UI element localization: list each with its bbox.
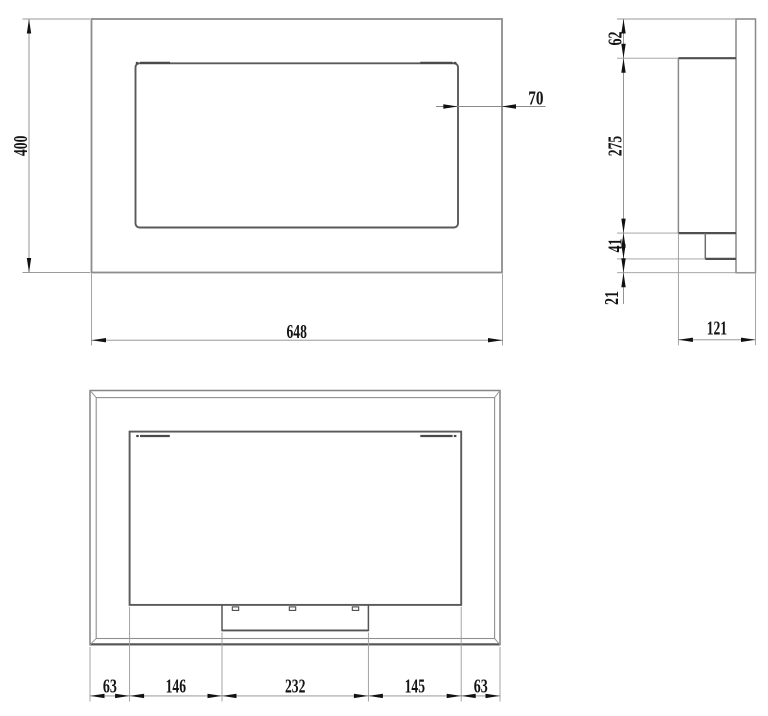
svg-text:145: 145 xyxy=(405,675,425,697)
svg-text:121: 121 xyxy=(707,318,727,340)
svg-text:62: 62 xyxy=(605,32,627,46)
svg-text:146: 146 xyxy=(166,675,186,697)
svg-text:63: 63 xyxy=(103,675,117,697)
svg-text:21: 21 xyxy=(601,291,623,305)
svg-text:400: 400 xyxy=(10,136,32,156)
svg-text:648: 648 xyxy=(287,321,307,343)
svg-text:275: 275 xyxy=(605,136,627,156)
svg-text:63: 63 xyxy=(474,675,488,697)
svg-text:70: 70 xyxy=(528,87,543,109)
svg-text:232: 232 xyxy=(285,675,305,697)
svg-text:41: 41 xyxy=(605,239,627,253)
